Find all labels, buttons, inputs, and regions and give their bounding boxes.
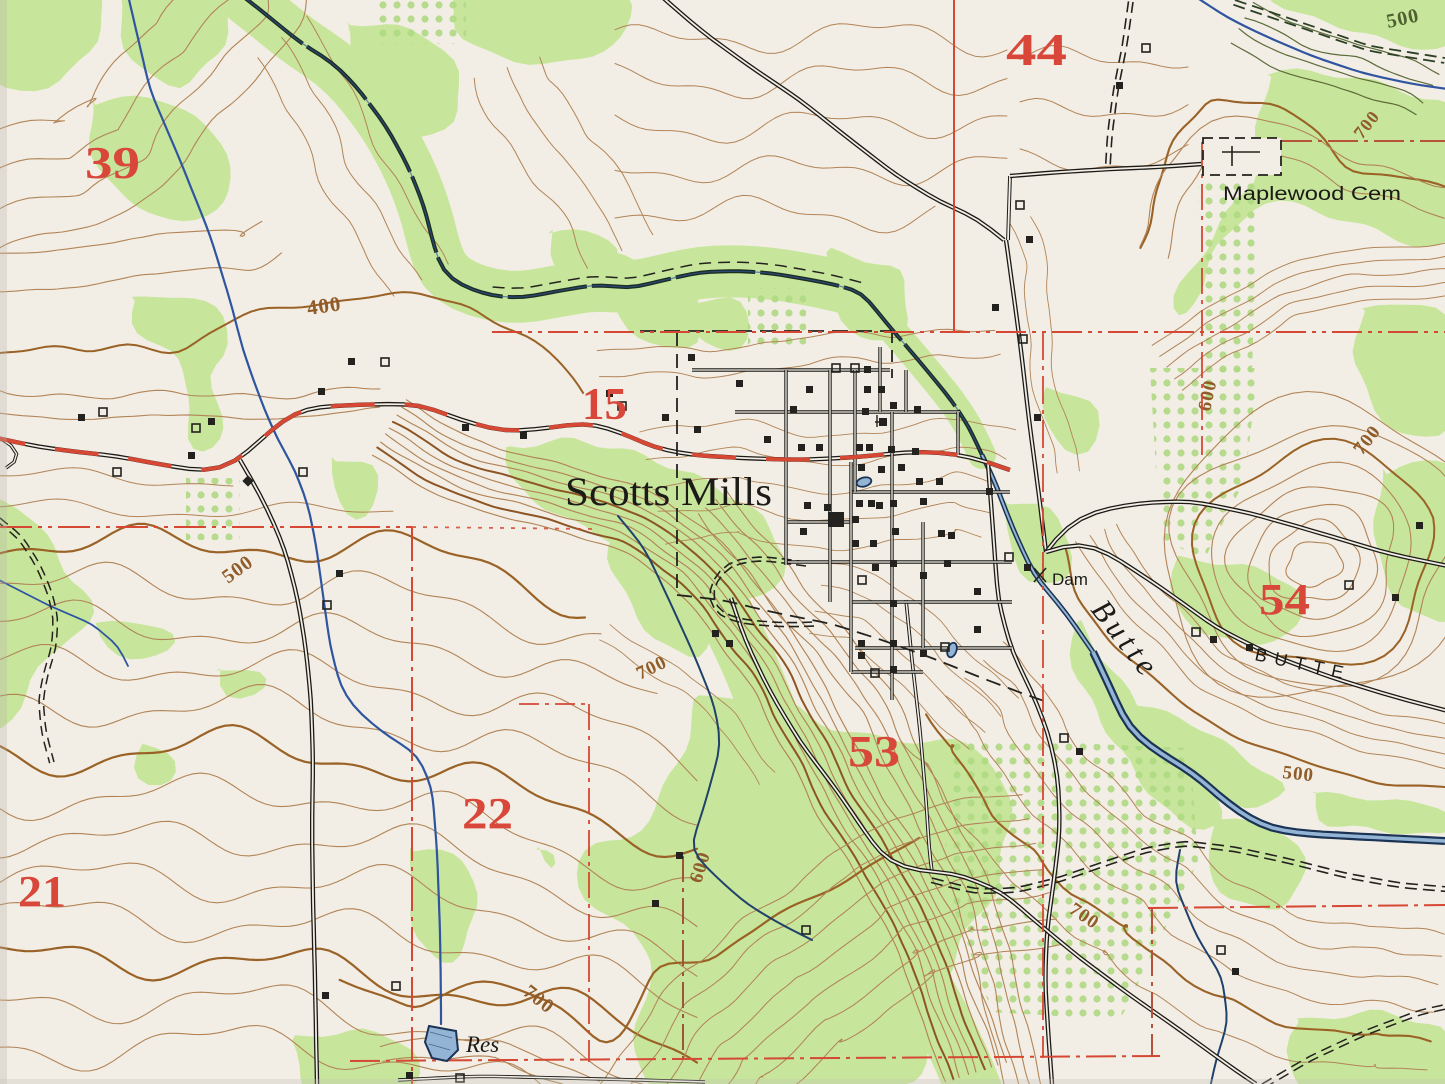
svg-text:15: 15 xyxy=(582,379,627,429)
svg-text:Scotts Mills: Scotts Mills xyxy=(565,469,772,514)
svg-text:39: 39 xyxy=(85,138,140,188)
svg-text:54: 54 xyxy=(1259,575,1310,624)
svg-text:44: 44 xyxy=(1006,24,1067,75)
svg-text:53: 53 xyxy=(848,727,900,776)
svg-text:21: 21 xyxy=(18,867,66,916)
svg-text:Dam: Dam xyxy=(1052,570,1088,589)
svg-text:Res: Res xyxy=(465,1032,499,1057)
svg-text:400: 400 xyxy=(305,291,343,320)
svg-text:500: 500 xyxy=(1281,762,1315,786)
svg-text:22: 22 xyxy=(462,789,513,838)
svg-text:Maplewood Cem: Maplewood Cem xyxy=(1223,184,1401,205)
